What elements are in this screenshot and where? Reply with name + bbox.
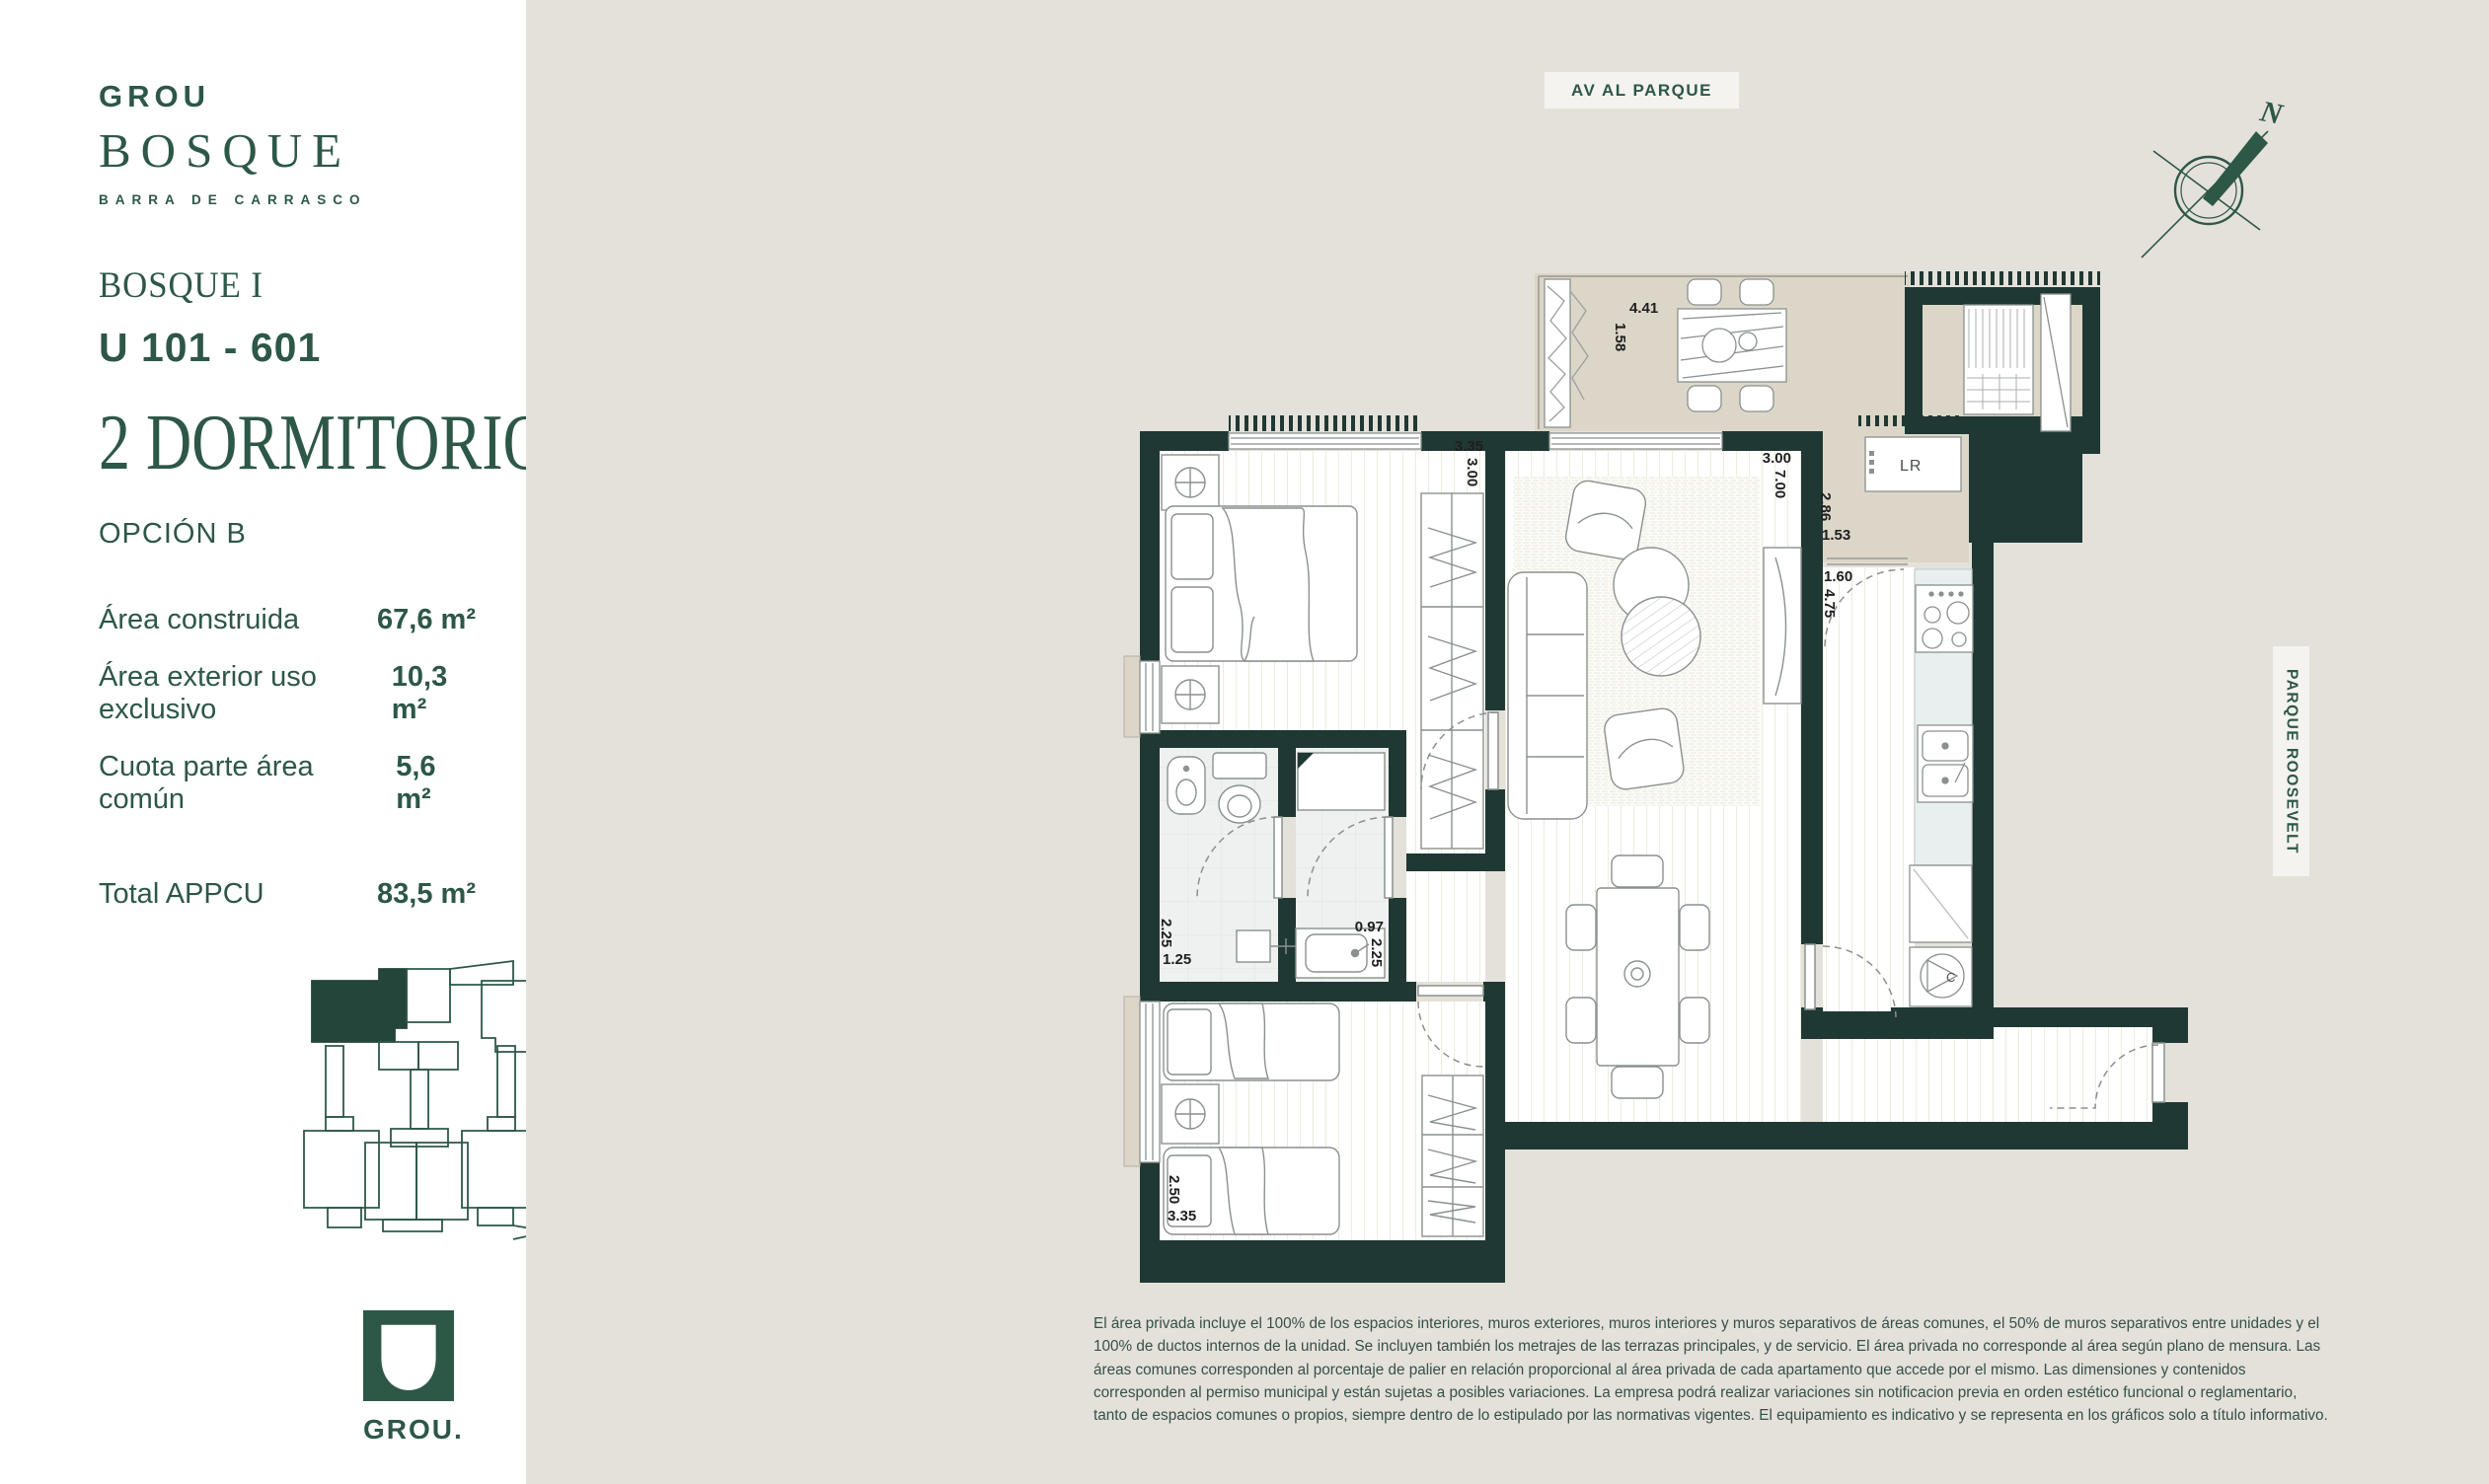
brand-logo: GROU BOSQUE BARRA DE CARRASCO [99, 79, 367, 207]
area-value: 10,3 m² [392, 661, 476, 726]
area-table: Área construida 67,6 m² Área exterior us… [99, 604, 476, 935]
dim-terrace-depth: 1.58 [1612, 323, 1628, 351]
area-value: 67,6 m² [377, 604, 476, 636]
laundry-label: LR [1900, 458, 1922, 475]
unit-info: BOSQUE I U 101 - 601 2 DORMITORIOS OPCIÓ… [99, 264, 513, 551]
dim-bedroom2-width: 3.35 [1168, 1208, 1196, 1224]
brochure-page: GROU BOSQUE BARRA DE CARRASCO BOSQUE I U… [0, 0, 2489, 1484]
grou-mark-icon [363, 1310, 454, 1401]
area-label: Cuota parte área común [99, 751, 396, 816]
street-label-right: PARQUE ROOSEVELT [2273, 646, 2309, 876]
option-label: OPCIÓN B [99, 518, 513, 551]
dim-terrace-width: 4.41 [1629, 300, 1658, 317]
brand-company: GROU [99, 79, 367, 114]
total-label: Total APPCU [99, 878, 264, 911]
footer-logo: GROU. [363, 1310, 472, 1446]
area-row: Cuota parte área común 5,6 m² [99, 751, 476, 816]
compass-needle-icon [2203, 131, 2268, 206]
brand-location: BARRA DE CARRASCO [99, 192, 367, 207]
dim-bath1-width: 1.25 [1163, 951, 1191, 968]
brand-project: BOSQUE [99, 122, 367, 179]
street-label-top: AV AL PARQUE [1545, 72, 1739, 109]
total-row: Total APPCU 83,5 m² [99, 878, 476, 911]
page-title: 2 DORMITORIOS [99, 399, 430, 488]
total-value: 83,5 m² [377, 878, 476, 911]
dim-service-depth: 2.86 [1817, 492, 1834, 521]
heater-label: C [1946, 970, 1955, 985]
compass-north-label: N [2256, 95, 2286, 131]
dim-bedroom1-width: 3.35 [1455, 438, 1483, 455]
area-label: Área exterior uso exclusivo [99, 661, 392, 726]
dim-bath1-depth: 2.25 [1158, 919, 1174, 947]
dim-living-depth: 7.00 [1772, 470, 1788, 498]
building-footprint-diagram [284, 943, 559, 1266]
highlighted-unit [312, 969, 407, 1042]
service-area [1964, 294, 2071, 431]
building-name: BOSQUE I [99, 264, 489, 307]
dim-living-width: 3.00 [1763, 450, 1791, 467]
plan-panel: AV AL PARQUE PARQUE ROOSEVELT N [526, 0, 2489, 1484]
window-hatch [1229, 415, 1421, 431]
dim-bath2-depth: 2.25 [1368, 938, 1385, 967]
dim-bedroom1-depth: 3.00 [1464, 458, 1480, 486]
area-row: Área exterior uso exclusivo 10,3 m² [99, 661, 476, 726]
dim-kitchen-width: 1.60 [1824, 568, 1852, 585]
legal-disclaimer: El área privada incluye el 100% de los e… [1094, 1312, 2329, 1427]
unit-numbers: U 101 - 601 [99, 325, 513, 371]
area-row: Área construida 67,6 m² [99, 604, 476, 636]
area-value: 5,6 m² [396, 751, 476, 816]
dim-kitchen-depth: 4.75 [1821, 589, 1838, 618]
floor-plan: 4.411.583.353.003.007.002.861.531.604.75… [1120, 163, 2206, 1288]
kitchen [1910, 569, 1973, 1006]
railing-hatch [1905, 271, 2100, 285]
dim-bath2-width: 0.97 [1355, 919, 1384, 935]
footer-logo-text: GROU. [363, 1414, 472, 1446]
area-label: Área construida [99, 604, 299, 636]
dim-service-width: 1.53 [1822, 527, 1850, 544]
left-panel: GROU BOSQUE BARRA DE CARRASCO BOSQUE I U… [0, 0, 526, 1484]
dim-bedroom2-depth: 2.50 [1166, 1175, 1182, 1204]
